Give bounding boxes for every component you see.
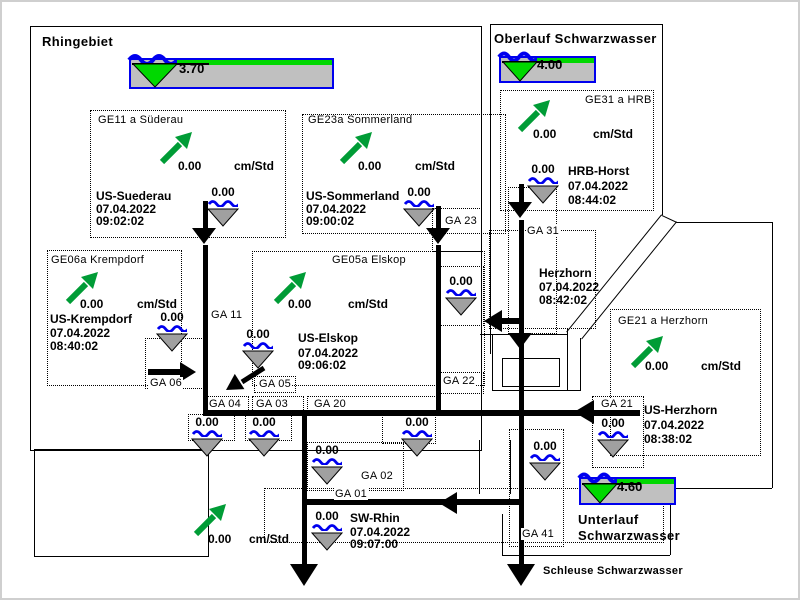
station-name-elskop: US-Elskop	[298, 331, 358, 345]
level-pointer-icon	[156, 333, 188, 352]
gradient-value-sw-rhin: 0.00	[208, 532, 231, 546]
schwarzwasser-line	[519, 220, 524, 565]
level-pointer-icon	[207, 208, 239, 227]
water-wave-icon	[249, 429, 279, 437]
unterlauf-title-line2: Schwarzwasser	[578, 528, 680, 543]
water-wave-icon	[598, 430, 628, 438]
water-wave-icon	[243, 341, 273, 349]
gate-label-ga41: GA 41	[521, 528, 555, 540]
ga31-arrowhead	[508, 202, 532, 218]
channel-jog	[662, 215, 678, 223]
ga01-arrowhead	[439, 492, 457, 514]
wehr-branch-arrowhead	[484, 310, 502, 332]
wehr-wall-bottom	[492, 390, 581, 391]
ga11-line	[203, 245, 208, 413]
water-wave-icon	[404, 199, 434, 207]
level-pointer-icon	[248, 438, 280, 457]
gate-label-ga01: GA 01	[334, 488, 368, 500]
gradient-unit-suederau: cm/Std	[234, 159, 274, 173]
level-gauge-ga04[interactable]: 0.00	[190, 416, 224, 457]
oberlauf-title: Oberlauf Schwarzwasser	[494, 31, 657, 46]
right-bank-bottom	[675, 488, 772, 489]
station-name-krempdorf: US-Krempdorf	[50, 312, 132, 326]
unterlauf-title-line1: Unterlauf	[578, 512, 639, 527]
station-name-herzhorn-wehr: Herzhorn	[539, 266, 592, 280]
level-value: 0.00	[596, 417, 630, 429]
station-date-krempdorf: 07.04.2022	[50, 326, 110, 340]
station-time-hrb: 08:44:02	[568, 193, 616, 207]
level-value: 0.00	[310, 444, 344, 456]
station-name-us-herzhorn: US-Herzhorn	[644, 403, 717, 417]
level-value: 0.00	[310, 510, 344, 522]
ge11-label: GE11 a Süderau	[98, 114, 183, 126]
wehr-wall-mid	[567, 329, 568, 390]
wehr-wall-right	[580, 338, 581, 390]
station-time-sw-rhin: 09:07:00	[350, 537, 398, 551]
water-wave-icon	[208, 199, 238, 207]
level-gauge-ga02[interactable]: 0.00	[310, 444, 344, 485]
water-wave-icon	[402, 429, 432, 437]
station-date-us-herzhorn: 07.04.2022	[644, 418, 704, 432]
gate-label-ga21: GA 21	[600, 398, 634, 410]
ge21-label: GE21 a Herzhorn	[618, 315, 708, 327]
gate-label-ga06: GA 06	[149, 377, 183, 389]
gradient-value-elskop: 0.00	[288, 297, 311, 311]
level-gauge-ga41[interactable]: 0.00	[528, 440, 562, 481]
suederau-outflow-arrowhead	[192, 228, 216, 244]
station-name-hrb: HRB-Horst	[568, 164, 629, 178]
gate-label-ga22: GA 22	[442, 375, 476, 387]
level-gauge-us-herzhorn[interactable]: 0.00	[596, 417, 630, 458]
hrb-outflow-line	[519, 184, 524, 204]
lower-channel-left-bank	[479, 440, 480, 494]
gradient-value-us-herzhorn: 0.00	[645, 359, 668, 373]
gate-label-ga23: GA 23	[444, 215, 478, 227]
station-time-herzhorn-wehr: 08:42:02	[539, 293, 587, 307]
gradient-unit-elskop: cm/Std	[348, 297, 388, 311]
oberlauf-level-gauge[interactable]: 4.00	[499, 52, 596, 83]
gradient-value-krempdorf: 0.00	[80, 297, 103, 311]
unterlauf-level-gauge[interactable]: 4.60	[579, 473, 676, 505]
gradient-value-suederau: 0.00	[178, 159, 201, 173]
level-pointer-icon	[191, 438, 223, 457]
station-time-us-herzhorn: 08:38:02	[644, 432, 692, 446]
level-value: 0.00	[190, 416, 224, 428]
water-wave-icon	[192, 429, 222, 437]
water-wave-icon	[312, 457, 342, 465]
level-pointer-icon	[527, 185, 559, 204]
level-value: 0.00	[400, 416, 434, 428]
ge06-label: GE06a Krempdorf	[51, 254, 144, 266]
gradient-value-hrb: 0.00	[533, 127, 556, 141]
station-time-sommerland: 09:00:02	[306, 214, 354, 228]
gradient-value-sommerland: 0.00	[358, 159, 381, 173]
gate-label-ga31: GA 31	[526, 225, 560, 237]
level-value: 0.00	[528, 440, 562, 452]
level-pointer-icon	[597, 439, 629, 458]
wehr-inflow-arrowhead	[508, 333, 532, 349]
gate-label-ga03: GA 03	[255, 398, 289, 410]
station-name-sommerland: US-Sommerland	[306, 189, 399, 203]
wehr-chamber-outline	[502, 358, 560, 387]
oberlauf-outline-top	[490, 24, 662, 25]
level-pointer-icon	[242, 350, 274, 369]
gradient-unit-us-herzhorn: cm/Std	[701, 359, 741, 373]
rhingebiet-title: Rhingebiet	[42, 34, 113, 49]
rhingebiet-level-gauge[interactable]: 3.70	[129, 54, 334, 89]
sommerland-outflow-line	[436, 206, 441, 230]
level-value: 0.00	[206, 186, 240, 198]
gate-label-ga04: GA 04	[208, 398, 242, 410]
ga22-line	[436, 245, 441, 415]
level-gauge-suederau[interactable]: 0.00	[206, 186, 240, 227]
right-bank-top	[677, 222, 772, 223]
level-gauge-elskop[interactable]: 0.00	[241, 328, 275, 369]
ge05-label: GE05a Elskop	[332, 254, 406, 266]
ga23-arrowhead	[426, 228, 450, 244]
level-gauge-ga20[interactable]: 0.00	[400, 416, 434, 457]
schleuse-outflow-arrowhead	[507, 564, 535, 586]
level-pointer-icon	[445, 297, 477, 316]
station-name-sw-rhin: SW-Rhin	[350, 511, 400, 525]
level-gauge-krempdorf[interactable]: 0.00	[155, 311, 189, 352]
gate-label-ga02: GA 02	[360, 470, 394, 482]
level-pointer-icon	[403, 208, 435, 227]
level-value: 0.00	[247, 416, 281, 428]
ga21-arrowhead	[574, 400, 594, 424]
sw-rhin-line	[302, 415, 307, 567]
gradient-unit-sw-rhin: cm/Std	[249, 532, 289, 546]
level-pointer-icon	[311, 466, 343, 485]
station-date-herzhorn-wehr: 07.04.2022	[539, 280, 599, 294]
ga06-line	[148, 369, 180, 375]
gate-label-ga05: GA 05	[258, 378, 292, 390]
right-bank-edge	[772, 222, 773, 488]
schleuse-label: Schleuse Schwarzwasser	[543, 565, 683, 577]
rhingebiet-bay-outline	[34, 449, 209, 557]
water-wave-icon	[528, 176, 558, 184]
level-gauge-ga23[interactable]: 0.00	[444, 275, 478, 316]
rhingebiet-level-value: 3.70	[179, 61, 204, 76]
ge31-label: GE31 a HRB	[585, 94, 652, 106]
oberlauf-outline-right	[662, 24, 663, 215]
water-wave-icon	[530, 453, 560, 461]
scada-canvas: Rhingebiet 3.70 Oberlauf Schwarzwasser 4…	[0, 0, 800, 600]
level-value: 0.00	[241, 328, 275, 340]
level-gauge-sw-rhin[interactable]: 0.00	[310, 510, 344, 551]
gate-label-ga11: GA 11	[210, 309, 243, 321]
level-value: 0.00	[402, 186, 436, 198]
level-value: 0.00	[444, 275, 478, 287]
water-wave-icon	[157, 324, 187, 332]
level-gauge-sommerland[interactable]: 0.00	[402, 186, 436, 227]
station-date-hrb: 07.04.2022	[568, 179, 628, 193]
station-name-suederau: US-Suederau	[96, 189, 171, 203]
ge23-label: GE23a Sommerland	[308, 114, 412, 126]
level-gauge-hrb[interactable]: 0.00	[526, 163, 560, 204]
level-value: 0.00	[155, 311, 189, 323]
oberlauf-level-value: 4.00	[537, 57, 562, 72]
gate-label-ga20: GA 20	[313, 398, 347, 410]
gradient-unit-sommerland: cm/Std	[415, 159, 455, 173]
water-wave-icon	[312, 523, 342, 531]
station-time-suederau: 09:02:02	[96, 214, 144, 228]
unterlauf-level-value: 4.60	[617, 479, 642, 494]
gradient-unit-krempdorf: cm/Std	[137, 297, 177, 311]
level-pointer-icon	[311, 532, 343, 551]
unterlauf-outline-bottom	[502, 555, 670, 556]
water-wave-icon	[446, 288, 476, 296]
station-time-krempdorf: 08:40:02	[50, 339, 98, 353]
sw-rhin-outflow-arrowhead	[290, 564, 318, 586]
level-value: 0.00	[526, 163, 560, 175]
level-pointer-icon	[529, 462, 561, 481]
level-pointer-icon	[401, 438, 433, 457]
wehr-wall-left	[492, 334, 493, 390]
station-time-elskop: 09:06:02	[298, 358, 346, 372]
level-gauge-ga03[interactable]: 0.00	[247, 416, 281, 457]
gradient-unit-hrb: cm/Std	[593, 127, 633, 141]
